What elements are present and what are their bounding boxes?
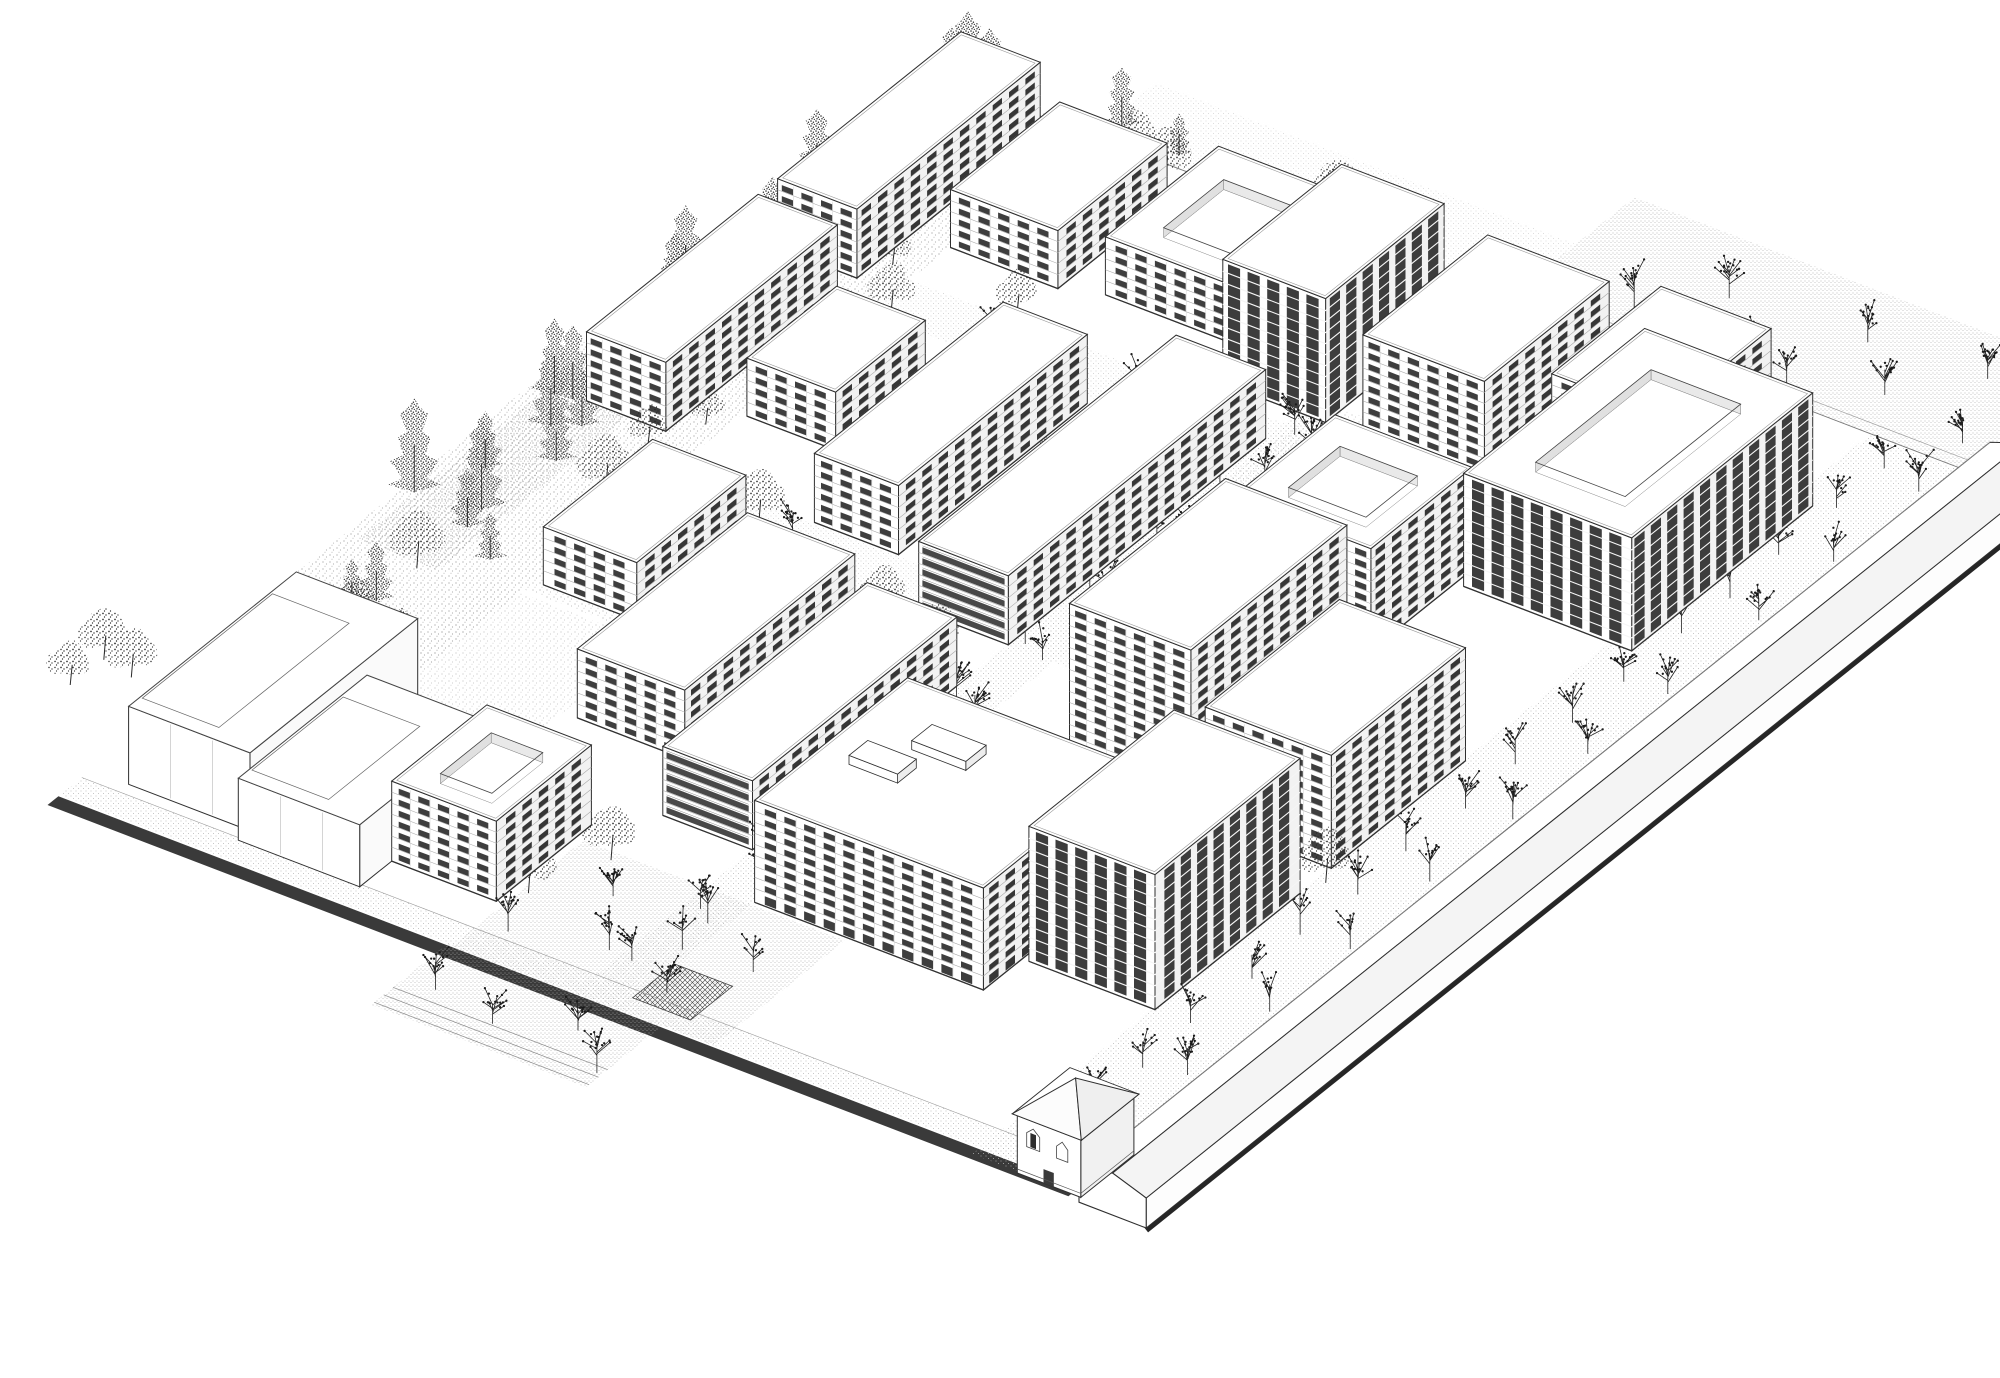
canopy-blob	[885, 262, 906, 283]
canopy-blob	[875, 565, 896, 586]
drawing-canvas	[0, 0, 2000, 1378]
canopy-blob	[94, 608, 117, 631]
canopy-blob	[1297, 844, 1325, 872]
canopy-blob	[644, 404, 660, 420]
canopy-blob	[405, 510, 431, 536]
canopy-blob	[1009, 269, 1028, 288]
canopy-blob	[602, 806, 626, 830]
masterplan-axonometric-svg	[0, 0, 2000, 1378]
canopy-blob	[596, 434, 621, 459]
canopy-blob	[62, 640, 81, 659]
canopy-blob	[628, 417, 648, 437]
canopy-blob	[1129, 110, 1145, 126]
canopy-blob	[749, 469, 773, 493]
gatehouse-dormer-window	[1030, 1133, 1036, 1149]
canopy-blob	[1317, 827, 1340, 850]
canopy-blob	[124, 628, 146, 650]
